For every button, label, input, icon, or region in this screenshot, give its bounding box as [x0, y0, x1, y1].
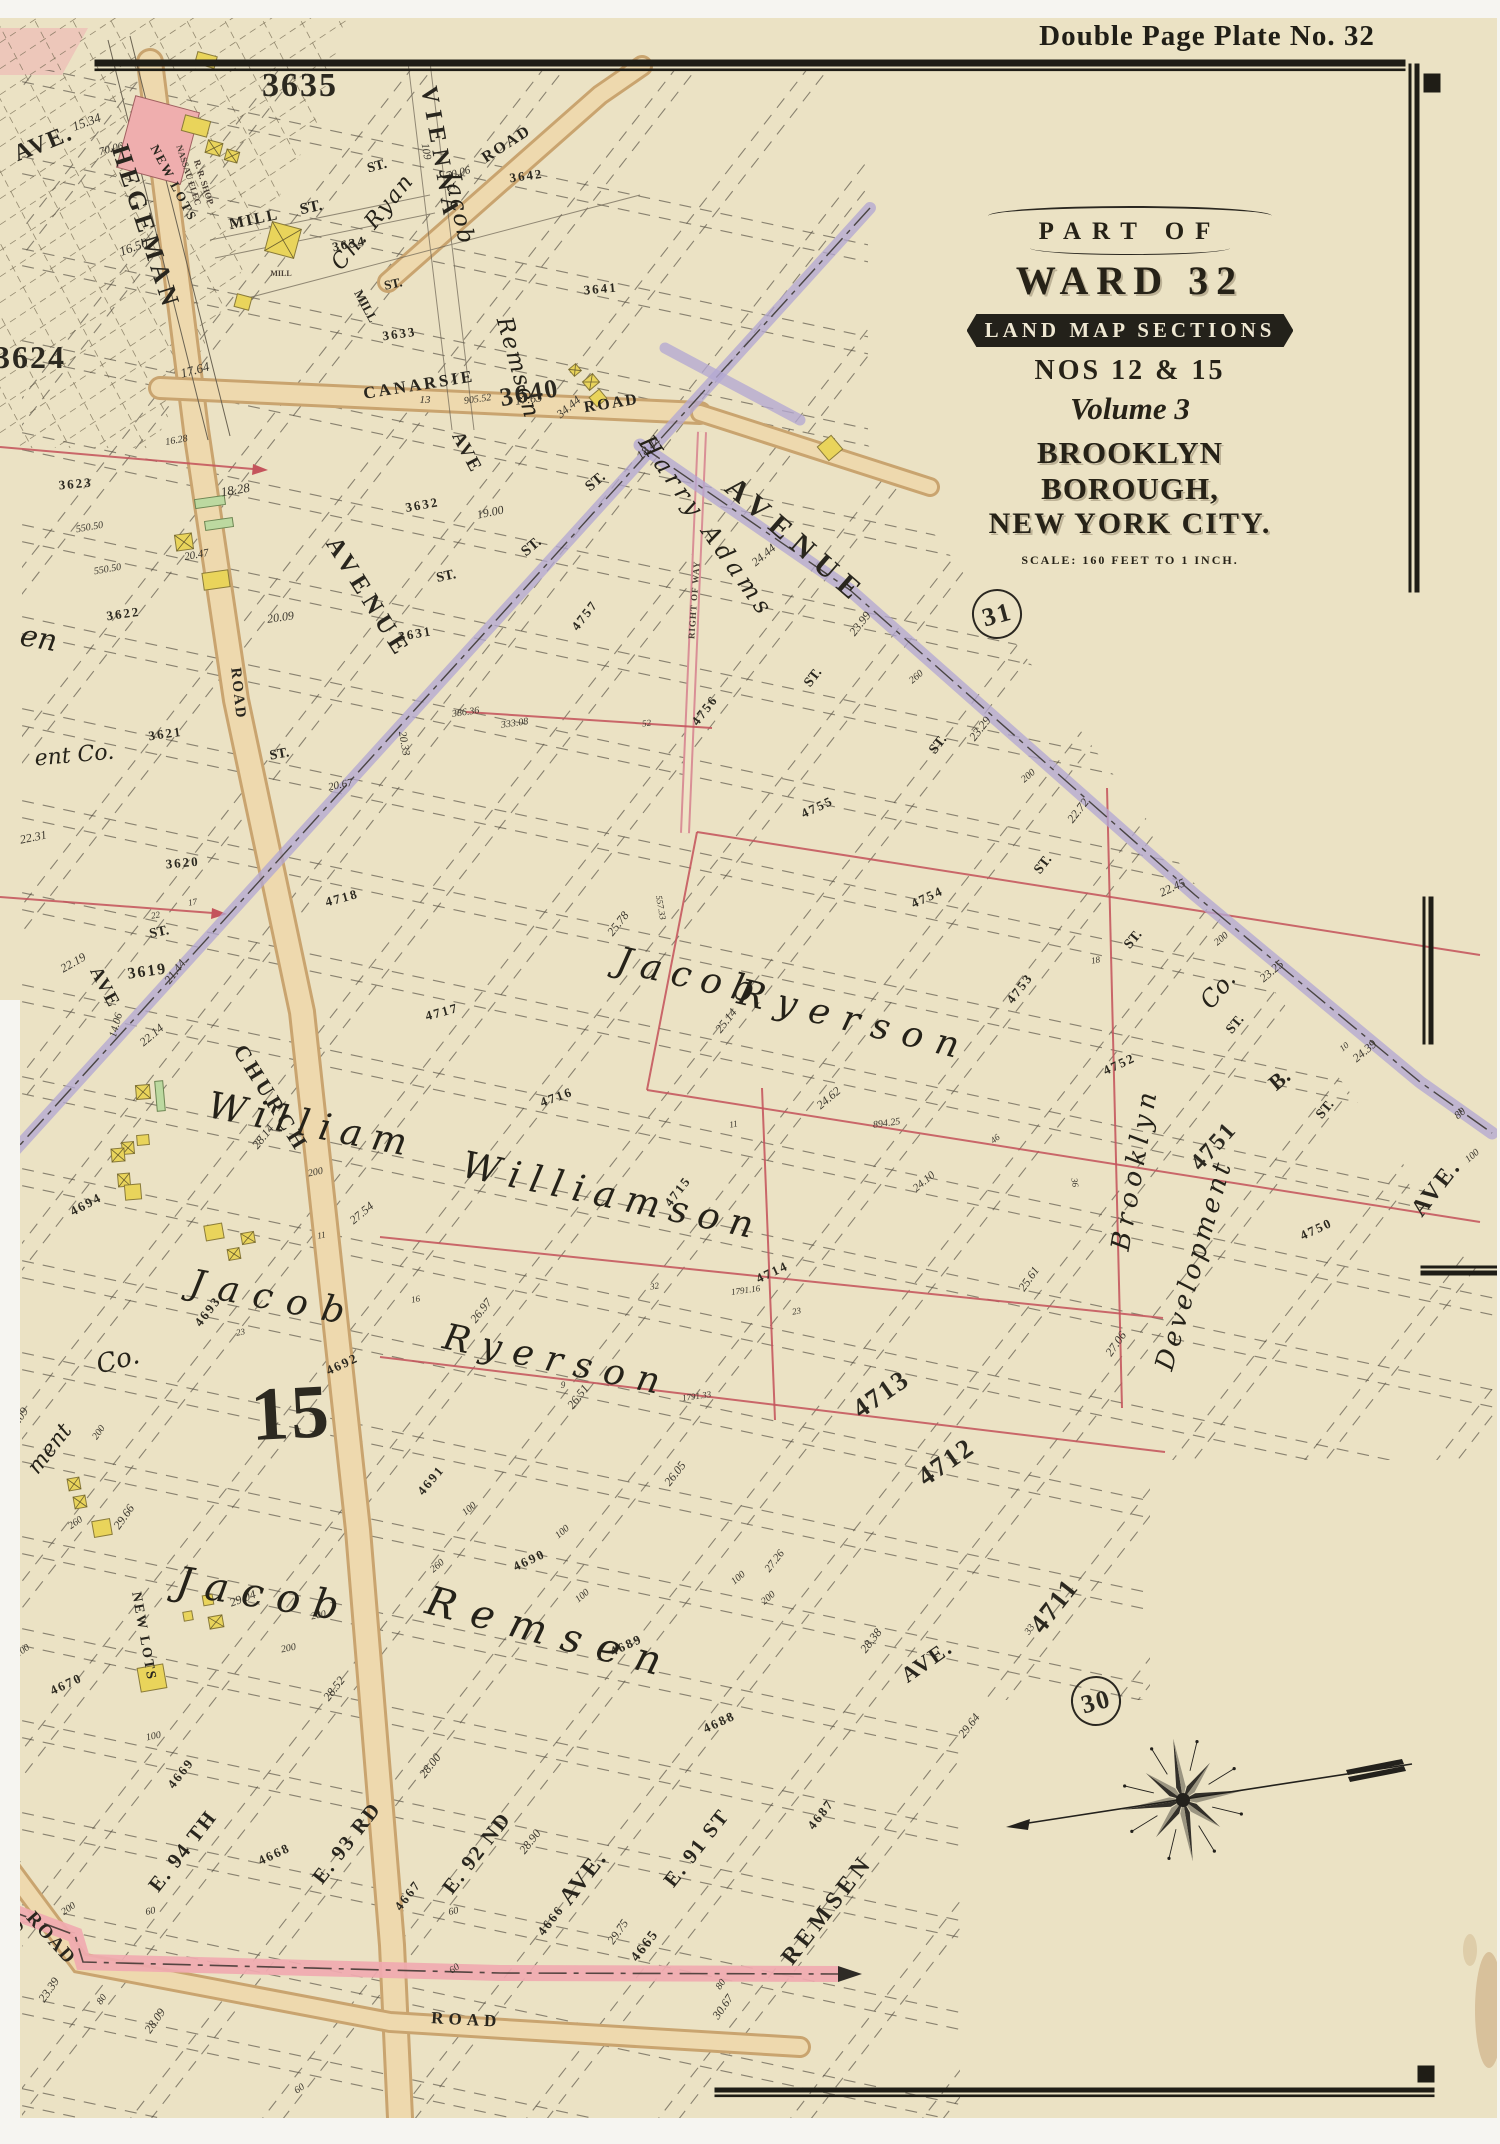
title-volume: Volume 3 — [948, 391, 1312, 427]
corner-mark-bottom-right — [1418, 2066, 1434, 2082]
right-border-step-a — [1421, 1266, 1497, 1268]
plot-number: 3624 — [0, 339, 66, 375]
bottom-border-bar — [715, 2088, 1434, 2092]
title-sections-nos: NOS 12 & 15 — [948, 355, 1312, 387]
right-border-outer — [1415, 64, 1419, 592]
plot-number: 3641 — [583, 280, 618, 298]
building — [92, 1519, 113, 1538]
compass-tick-dot — [1167, 1857, 1170, 1860]
plate-header: Double Page Plate No. 32 — [1012, 20, 1402, 53]
building — [208, 1615, 224, 1629]
top-border-line — [95, 69, 1405, 71]
margin-top — [0, 0, 1500, 18]
stain — [1463, 1934, 1477, 1966]
title-flourish — [1030, 248, 1230, 255]
right-border-inner — [1409, 64, 1411, 592]
corner-mark-top-right — [1424, 74, 1440, 92]
compass-tick-dot — [1233, 1767, 1236, 1770]
title-borough: BROOKLYN BOROUGH, — [948, 435, 1312, 507]
title-scale: SCALE: 160 FEET TO 1 INCH. — [948, 553, 1312, 568]
building — [183, 1611, 193, 1621]
building-footprint — [202, 570, 230, 590]
building-footprint — [204, 1223, 224, 1241]
title-sections-bar: LAND MAP SECTIONS — [967, 314, 1294, 347]
building — [73, 1495, 87, 1509]
atlas-plate-page: 15.3470.0616.5017.6410970.0613905.5217.6… — [0, 0, 1500, 2144]
title-block: PART OF WARD 32 LAND MAP SECTIONS NOS 12… — [948, 206, 1312, 568]
bottom-border-line — [715, 2095, 1434, 2097]
street-label: ROAD — [431, 2008, 502, 2031]
plot-number: 3620 — [165, 854, 200, 872]
building — [111, 1148, 125, 1162]
compass-tick-dot — [1240, 1812, 1243, 1815]
building — [204, 1223, 224, 1241]
building — [135, 1084, 150, 1099]
compass-tick-dot — [1130, 1830, 1133, 1833]
building-footprint — [92, 1519, 113, 1538]
right-border-notch-a — [1423, 897, 1425, 1044]
owner-script-label: en — [17, 618, 60, 659]
right-border-step-b — [1421, 1271, 1497, 1275]
building — [174, 533, 193, 551]
building — [67, 1477, 81, 1491]
compass-tick-dot — [1150, 1747, 1153, 1750]
margin-left — [0, 1000, 20, 2144]
measurement-label: 13 — [420, 394, 432, 406]
margin-bottom — [0, 2118, 1500, 2144]
compass-tick-dot — [1195, 1740, 1198, 1743]
measurement-label: 11 — [317, 1229, 327, 1240]
top-border-bar — [95, 60, 1405, 66]
building — [227, 1248, 241, 1261]
section-numeral: 15 — [249, 1369, 333, 1457]
title-flourish — [988, 206, 1272, 216]
right-border-notch-b — [1429, 897, 1433, 1044]
building-footprint — [183, 1611, 193, 1621]
building-footprint — [137, 1134, 150, 1145]
street-label: MILL — [270, 269, 291, 278]
measurement-label: 11 — [729, 1118, 739, 1129]
building — [137, 1134, 150, 1145]
building — [202, 570, 230, 590]
compass-tick-dot — [1123, 1784, 1126, 1787]
plot-number: 3635 — [262, 67, 338, 104]
building — [124, 1184, 141, 1200]
plot-number: 3623 — [58, 475, 93, 493]
building — [241, 1231, 256, 1244]
title-ward: WARD 32 — [948, 257, 1312, 304]
title-city: NEW YORK CITY. — [948, 507, 1312, 541]
building-footprint — [124, 1184, 141, 1200]
title-part-of: PART OF — [948, 218, 1312, 246]
compass-tick-dot — [1213, 1850, 1216, 1853]
